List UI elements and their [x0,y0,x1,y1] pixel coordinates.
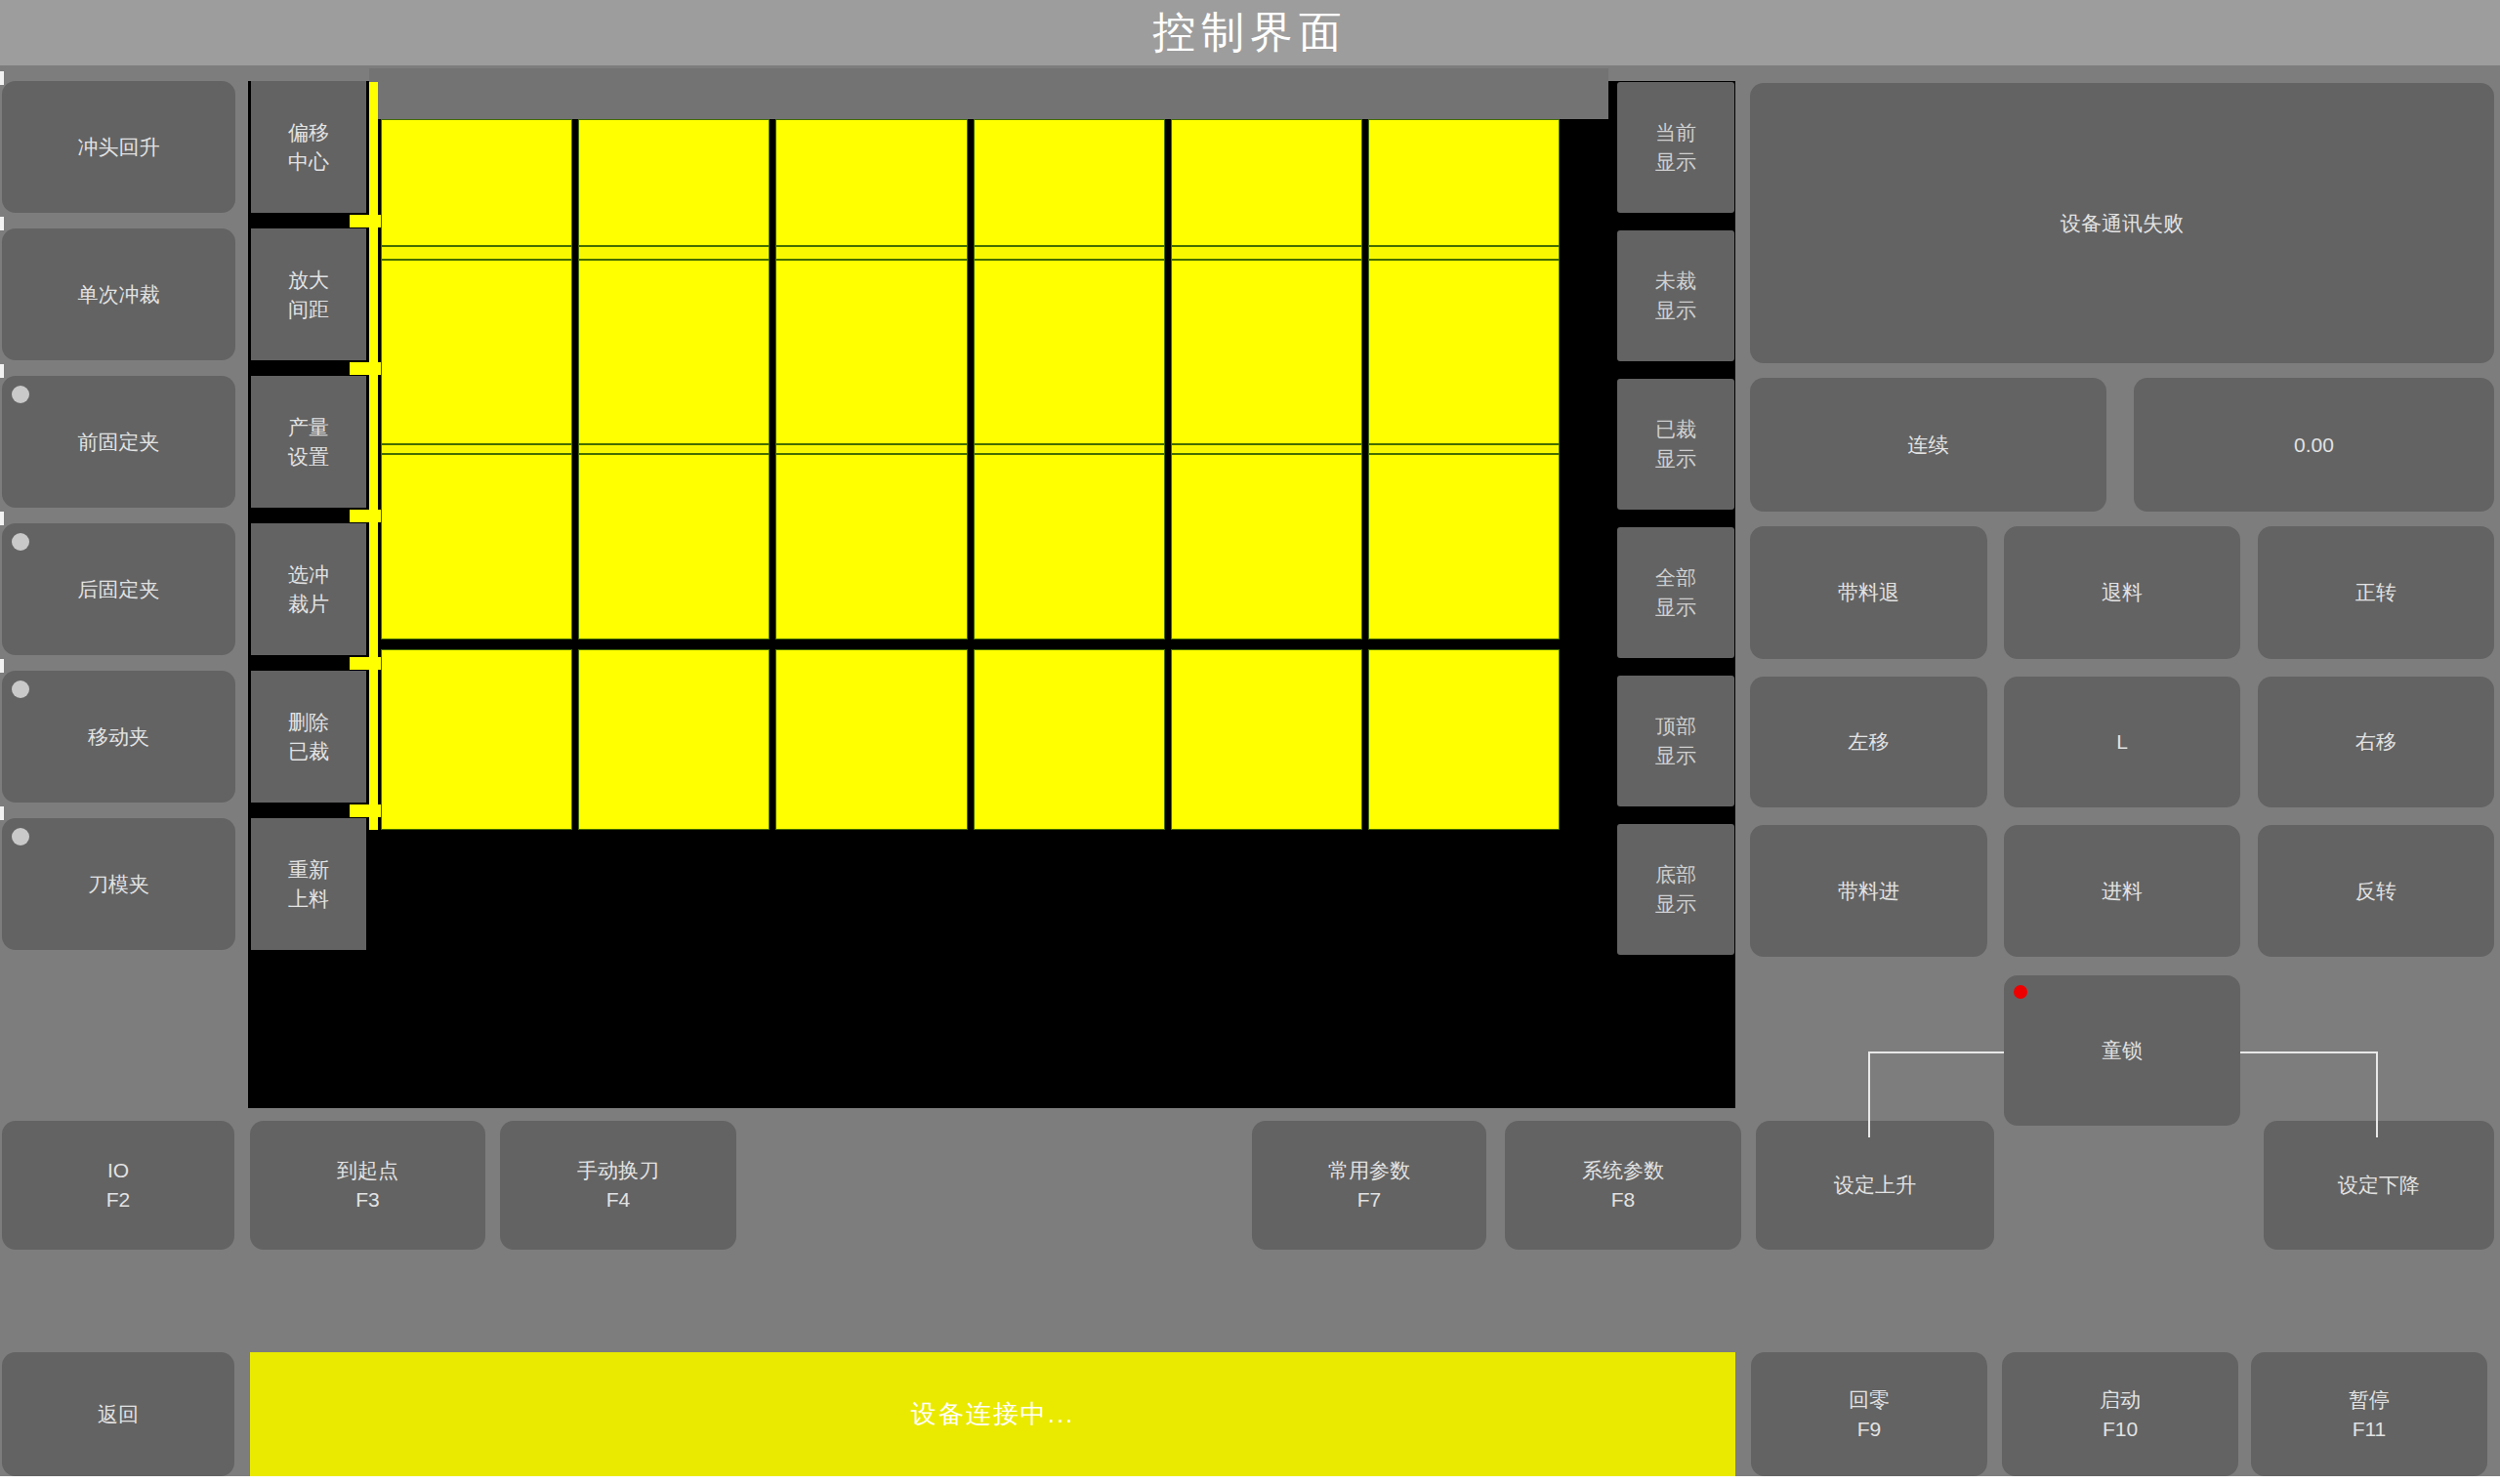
manual-tool-change-button-label: F4 [606,1185,631,1215]
mode-continuous-button[interactable]: 连续 [1750,378,2106,512]
position-value-display: 0.00 [2134,378,2494,512]
sheet-waste-tab [350,510,381,522]
home-zero-button[interactable]: 回零F9 [1751,1352,1987,1476]
reverse-rotate-button[interactable]: 反转 [2258,825,2494,957]
move-right-button-label: 右移 [2355,727,2396,757]
row-gap [1171,639,1362,649]
sheet-piece[interactable] [974,649,1165,830]
row-gap [775,639,967,649]
waste-strip [1368,444,1560,454]
sheet-piece[interactable] [1171,119,1362,246]
device-comm-status: 设备通讯失败 [1750,83,2494,363]
connection-status-text: 设备连接中... [911,1397,1075,1431]
enlarge-spacing-button[interactable]: 放大间距 [251,228,366,360]
sheet-piece[interactable] [775,260,967,444]
start-button-label: F10 [2103,1415,2138,1444]
manual-tool-change-button-label: 手动换刀 [577,1156,659,1185]
view-top-button-label: 显示 [1655,741,1696,770]
set-rise-button-label: 设定上升 [1834,1171,1916,1200]
common-params-button[interactable]: 常用参数F7 [1252,1121,1486,1250]
row-gap [578,639,770,649]
edge-tick [0,806,4,820]
offset-center-button-label: 中心 [288,147,329,177]
view-all-button-label: 显示 [1655,593,1696,622]
offset-center-button[interactable]: 偏移中心 [251,81,366,213]
start-button-label: 启动 [2100,1385,2141,1415]
reload-material-button-label: 上料 [288,885,329,914]
go-to-origin-button-label: F3 [355,1185,380,1215]
forward-rotate-button[interactable]: 正转 [2258,526,2494,659]
waste-strip [775,246,967,260]
retract-material-button[interactable]: 退料 [2004,526,2240,659]
sheet-piece[interactable] [775,454,967,639]
enlarge-spacing-button-label: 放大 [288,266,329,295]
bottom-edge [0,1476,2500,1484]
move-left-button[interactable]: 左移 [1750,677,1987,807]
sheet-piece[interactable] [381,119,572,246]
sheet-piece[interactable] [775,649,967,830]
l-button[interactable]: L [2004,677,2240,807]
system-params-button-label: F8 [1611,1185,1636,1215]
waste-strip [381,444,572,454]
sheet-piece[interactable] [974,119,1165,246]
waste-strip [1368,246,1560,260]
moving-clamp-button-label: 移动夹 [88,722,149,752]
common-params-button-label: F7 [1357,1185,1382,1215]
device-comm-status-text: 设备通讯失败 [2061,209,2184,238]
edge-tick [0,364,4,378]
page-title: 控制界面 [1152,4,1348,62]
system-params-button-label: 系统参数 [1582,1156,1664,1185]
enlarge-spacing-button-label: 间距 [288,295,329,324]
sheet-piece[interactable] [1171,260,1362,444]
sheet-waste-tab [350,657,381,670]
delete-cut-button[interactable]: 删除已裁 [251,671,366,803]
view-cut-button-label: 显示 [1655,444,1696,474]
punch-head-raise-button[interactable]: 冲头回升 [2,81,235,213]
set-lower-button-label: 设定下降 [2338,1171,2420,1200]
single-punch-button-label: 单次冲裁 [78,280,160,309]
edge-tick [0,217,4,230]
delete-cut-button-label: 删除 [288,708,329,737]
feed-in-with-material-button[interactable]: 带料进 [1750,825,1987,957]
view-cut-button[interactable]: 已裁显示 [1617,379,1734,510]
clamp-indicator-dot [12,680,29,698]
edge-tick [0,512,4,525]
sheet-edge-strip [369,82,378,830]
io-button[interactable]: IOF2 [2,1121,234,1250]
child-lock-button[interactable]: 童锁 [2004,975,2240,1126]
row-gap [974,639,1165,649]
view-uncut-button[interactable]: 未裁显示 [1617,230,1734,361]
rear-fixed-clamp-button[interactable]: 后固定夹 [2,523,235,655]
sheet-piece[interactable] [1368,649,1560,830]
sheet-piece-grid [381,119,1560,830]
title-bar: 控制界面 [0,0,2500,65]
output-count-settings-button-label: 设置 [288,442,329,472]
view-uncut-button-label: 显示 [1655,296,1696,325]
view-top-button-label: 顶部 [1655,712,1696,741]
output-count-settings-button[interactable]: 产量设置 [251,376,366,508]
home-zero-button-label: F9 [1857,1415,1882,1444]
common-params-button-label: 常用参数 [1328,1156,1410,1185]
waste-strip [974,246,1165,260]
waste-strip [1171,246,1362,260]
pause-button-label: 暂停 [2349,1385,2390,1415]
mode-continuous-label: 连续 [1908,431,1949,460]
rear-fixed-clamp-button-label: 后固定夹 [78,575,160,604]
feed-material-button[interactable]: 进料 [2004,825,2240,957]
reload-material-button-label: 重新 [288,855,329,885]
feed-back-with-material-button[interactable]: 带料退 [1750,526,1987,659]
child-lock-bracket-left [1868,1051,1870,1137]
delete-cut-button-label: 已裁 [288,737,329,766]
edge-tick [0,71,4,85]
output-count-settings-button-label: 产量 [288,413,329,442]
back-button[interactable]: 返回 [2,1352,234,1476]
sheet-waste-tab [350,804,381,817]
move-left-button-label: 左移 [1849,727,1890,757]
sheet-piece[interactable] [1368,260,1560,444]
die-clamp-button[interactable]: 刀模夹 [2,818,235,950]
system-params-button[interactable]: 系统参数F8 [1505,1121,1741,1250]
manual-tool-change-button[interactable]: 手动换刀F4 [500,1121,736,1250]
canvas-top-band [369,68,1608,119]
front-fixed-clamp-button-label: 前固定夹 [78,428,160,457]
moving-clamp-button[interactable]: 移动夹 [2,671,235,803]
start-button[interactable]: 启动F10 [2002,1352,2238,1476]
sheet-piece[interactable] [381,454,572,639]
waste-strip [974,444,1165,454]
view-current-button-label: 显示 [1655,147,1696,177]
view-top-button[interactable]: 顶部显示 [1617,676,1734,806]
feed-back-with-material-button-label: 带料退 [1838,578,1899,607]
view-bottom-button[interactable]: 底部显示 [1617,824,1734,955]
home-zero-button-label: 回零 [1849,1385,1890,1415]
row-gap [1368,639,1560,649]
retract-material-button-label: 退料 [2102,578,2143,607]
punch-head-raise-button-label: 冲头回升 [78,133,160,162]
sheet-piece[interactable] [974,454,1165,639]
select-piece-button-label: 裁片 [288,590,329,619]
single-punch-button[interactable]: 单次冲裁 [2,228,235,360]
set-lower-button[interactable]: 设定下降 [2264,1121,2494,1250]
sheet-piece[interactable] [1171,454,1362,639]
sheet-piece[interactable] [775,119,967,246]
waste-strip [775,444,967,454]
edge-tick [0,659,4,673]
sheet-piece[interactable] [1171,649,1362,830]
select-piece-button-label: 选冲 [288,560,329,590]
view-all-button-label: 全部 [1655,563,1696,593]
sheet-piece[interactable] [578,119,770,246]
go-to-origin-button-label: 到起点 [337,1156,398,1185]
sheet-piece[interactable] [578,649,770,830]
feed-material-button-label: 进料 [2102,877,2143,906]
sheet-piece[interactable] [578,260,770,444]
view-current-button[interactable]: 当前显示 [1617,82,1734,213]
l-button-label: L [2116,727,2128,757]
view-current-button-label: 当前 [1655,118,1696,147]
sheet-waste-tab [350,215,381,227]
pause-button[interactable]: 暂停F11 [2251,1352,2487,1476]
forward-rotate-button-label: 正转 [2355,578,2396,607]
feed-in-with-material-button-label: 带料进 [1838,877,1899,906]
row-gap [381,639,572,649]
connection-status-bar: 设备连接中... [250,1352,1735,1476]
io-button-label: IO [107,1156,129,1185]
clamp-indicator-dot [12,386,29,403]
view-all-button[interactable]: 全部显示 [1617,527,1734,658]
sheet-piece[interactable] [1368,119,1560,246]
sheet-piece[interactable] [578,454,770,639]
view-bottom-button-label: 底部 [1655,860,1696,889]
set-rise-button[interactable]: 设定上升 [1756,1121,1994,1250]
waste-strip [578,444,770,454]
waste-strip [1171,444,1362,454]
waste-strip [381,246,572,260]
pause-button-label: F11 [2353,1415,2387,1444]
sheet-piece[interactable] [1368,454,1560,639]
back-button-label: 返回 [98,1400,139,1429]
waste-strip [578,246,770,260]
sheet-piece[interactable] [381,260,572,444]
child-lock-bracket-right [2376,1051,2378,1137]
reload-material-button[interactable]: 重新上料 [251,818,366,950]
front-fixed-clamp-button[interactable]: 前固定夹 [2,376,235,508]
clamp-indicator-dot [12,533,29,551]
sheet-piece[interactable] [381,649,572,830]
view-uncut-button-label: 未裁 [1655,267,1696,296]
clamp-indicator-dot [12,828,29,845]
offset-center-button-label: 偏移 [288,118,329,147]
sheet-waste-tab [350,362,381,375]
child-lock-indicator [2014,985,2027,999]
go-to-origin-button[interactable]: 到起点F3 [250,1121,485,1250]
position-value-text: 0.00 [2294,431,2334,460]
die-clamp-button-label: 刀模夹 [88,870,149,899]
reverse-rotate-button-label: 反转 [2355,877,2396,906]
child-lock-label: 童锁 [2102,1036,2143,1065]
view-bottom-button-label: 显示 [1655,889,1696,919]
io-button-label: F2 [106,1185,131,1215]
move-right-button[interactable]: 右移 [2258,677,2494,807]
view-cut-button-label: 已裁 [1655,415,1696,444]
select-piece-button[interactable]: 选冲裁片 [251,523,366,655]
sheet-piece[interactable] [974,260,1165,444]
